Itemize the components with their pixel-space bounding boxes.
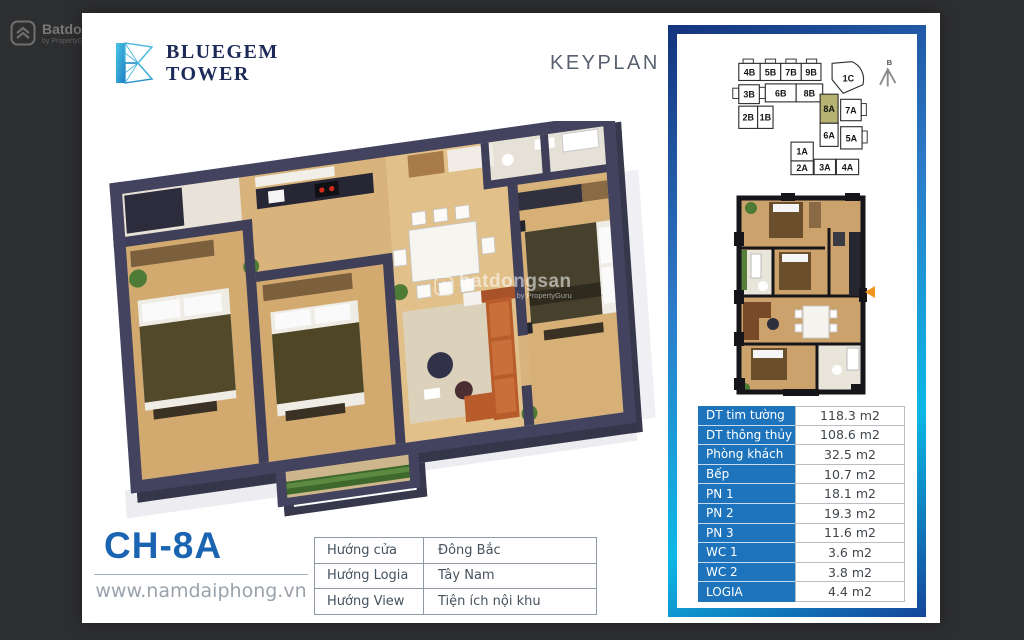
svg-text:4A: 4A [842,162,854,172]
keyplan-unit-2B: 2B [739,106,758,128]
keyplan-unit-2A: 2A [791,161,813,175]
spec-value: 11.6 m2 [795,524,905,544]
keyplan-panel-inner: 4B 5B 7B 9B 1C 3B 6B 8B 8A 2B 1B 7A 6A 5… [677,34,917,608]
keyplan-unit-4B: 4B [739,63,760,80]
spec-value: 108.6 m2 [795,426,905,446]
unit-block: CH-8A www.namdaiphong.vn [94,525,308,602]
keyplan-unit-3A: 3A [814,159,835,174]
keyplan-unit-6A: 6A [820,123,838,146]
spec-label: DT tim tường [698,406,795,426]
floorplan-2d [725,192,877,398]
keyplan-unit-7B: 7B [781,63,802,80]
keyplan-title: KEYPLAN [550,52,660,75]
svg-text:5A: 5A [846,133,858,143]
svg-text:5B: 5B [765,67,777,77]
svg-text:1B: 1B [760,113,772,123]
svg-text:3B: 3B [743,90,755,100]
direction-value: Tiện ích nội khu [424,589,596,614]
svg-text:7B: 7B [785,67,797,77]
spec-value: 118.3 m2 [795,406,905,426]
keyplan-unit-1A: 1A [791,142,813,161]
spec-value: 3.6 m2 [795,543,905,563]
svg-text:1C: 1C [843,73,855,83]
logo-line1: BLUEGEM [166,41,279,63]
table-row: PN 118.1 m2 [698,484,905,504]
table-row: Hướng Logia Tây Nam [315,564,596,590]
svg-text:B: B [887,58,893,67]
table-row: PN 311.6 m2 [698,524,905,544]
table-row: Bếp10.7 m2 [698,465,905,485]
keyplan-unit-9B: 9B [801,63,821,80]
table-row: Hướng cửa Đông Bắc [315,538,596,564]
keyplan-unit-1C: 1C [832,62,863,94]
svg-text:2A: 2A [796,163,808,173]
svg-text:3A: 3A [819,162,831,172]
bluegem-logo-icon [114,39,156,87]
keyplan-unit-5B: 5B [760,63,781,80]
unit-code: CH-8A [94,525,308,567]
direction-table: Hướng cửa Đông Bắc Hướng Logia Tây Nam H… [314,537,597,615]
keyplan-unit-6B: 6B [765,84,796,102]
svg-text:7A: 7A [845,105,857,115]
spec-label: WC 2 [698,563,795,583]
spec-label: PN 2 [698,504,795,524]
table-row: PN 219.3 m2 [698,504,905,524]
table-row: Hướng View Tiện ích nội khu [315,589,596,614]
direction-label: Hướng Logia [315,564,424,589]
table-row: Phòng khách32.5 m2 [698,445,905,465]
direction-label: Hướng cửa [315,538,424,563]
bluegem-logo: BLUEGEM TOWER [114,39,279,87]
table-row: DT tim tường118.3 m2 [698,406,905,426]
svg-text:9B: 9B [805,67,817,77]
spec-label: WC 1 [698,543,795,563]
svg-text:8B: 8B [804,88,816,98]
svg-text:6A: 6A [823,130,835,140]
direction-value: Tây Nam [424,564,596,589]
north-arrow-icon: B [880,58,895,86]
website-url: www.namdaiphong.vn [94,580,308,602]
table-row: WC 23.8 m2 [698,563,905,583]
keyplan-unit-8A-highlighted: 8A [820,94,838,123]
spec-value: 3.8 m2 [795,563,905,583]
spec-value: 4.4 m2 [795,582,905,602]
spec-label: Phòng khách [698,445,795,465]
floorplan-3d [98,121,670,523]
direction-value: Đông Bắc [424,538,596,563]
divider [94,574,308,575]
spec-label: PN 1 [698,484,795,504]
spec-label: DT thông thủy [698,426,795,446]
table-row: WC 13.6 m2 [698,543,905,563]
keyplan-unit-8B: 8B [796,84,823,102]
keyplan-unit-3B: 3B [739,85,760,104]
svg-text:4B: 4B [744,67,756,77]
svg-text:6B: 6B [775,88,787,98]
spec-label: Bếp [698,465,795,485]
svg-text:8A: 8A [823,104,835,114]
keyplan-unit-4A: 4A [836,159,858,174]
keyplan-panel: 4B 5B 7B 9B 1C 3B 6B 8B 8A 2B 1B 7A 6A 5… [668,25,926,617]
table-row: DT thông thủy108.6 m2 [698,426,905,446]
table-row: LOGIA4.4 m2 [698,582,905,602]
spec-value: 19.3 m2 [795,504,905,524]
spec-value: 32.5 m2 [795,445,905,465]
svg-text:2B: 2B [742,113,754,123]
svg-text:1A: 1A [796,147,808,157]
keyplan-unit-7A: 7A [841,99,862,120]
brochure-card: BLUEGEM TOWER KEYPLAN [82,13,940,623]
spec-label: LOGIA [698,582,795,602]
spec-label: PN 3 [698,524,795,544]
keyplan-unit-1B: 1B [758,106,773,128]
spec-value: 18.1 m2 [795,484,905,504]
spec-value: 10.7 m2 [795,465,905,485]
direction-label: Hướng View [315,589,424,614]
spec-table: DT tim tường118.3 m2 DT thông thủy108.6 … [698,406,905,602]
logo-line2: TOWER [166,63,279,85]
keyplan-map: 4B 5B 7B 9B 1C 3B 6B 8B 8A 2B 1B 7A 6A 5… [690,45,904,193]
keyplan-unit-5A: 5A [841,127,862,149]
batdongsan-house-icon [10,20,36,46]
